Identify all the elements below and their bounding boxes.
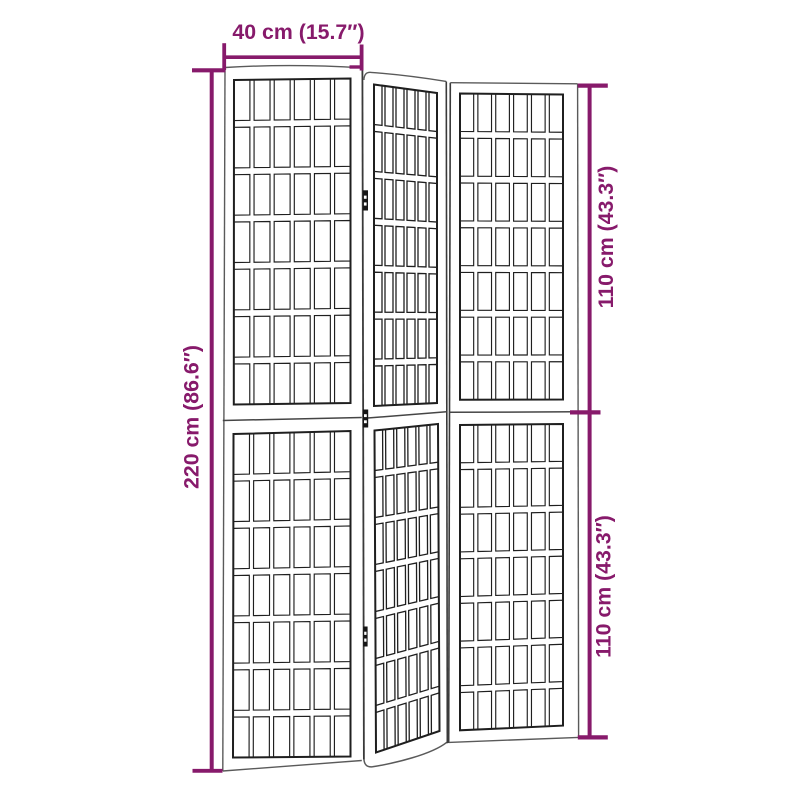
svg-text:220 cm (86.6″): 220 cm (86.6″) <box>180 345 204 489</box>
svg-text:40 cm (15.7″): 40 cm (15.7″) <box>232 20 364 44</box>
svg-text:110 cm (43.3″): 110 cm (43.3″) <box>592 515 616 658</box>
svg-text:110 cm (43.3″): 110 cm (43.3″) <box>594 166 618 309</box>
